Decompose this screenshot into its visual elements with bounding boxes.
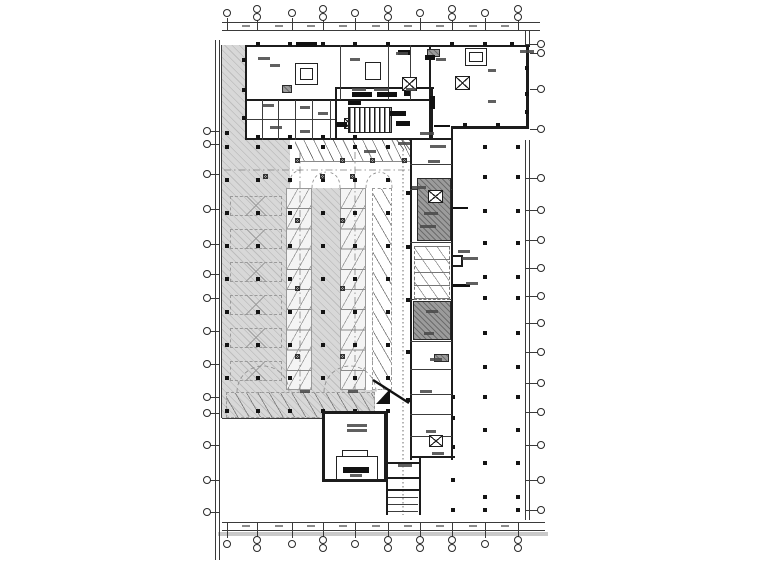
structural-column — [386, 178, 390, 182]
annotation-text-illegible — [398, 142, 410, 145]
annotation-text-illegible — [420, 225, 436, 228]
leader-line — [434, 125, 450, 127]
structural-column — [353, 244, 357, 248]
annotation-text-illegible — [420, 132, 434, 135]
wall-column-tick — [525, 66, 529, 70]
partition-wall — [330, 100, 331, 140]
wall-column-tick — [353, 135, 357, 139]
room-outline — [365, 62, 381, 80]
structural-column — [483, 428, 487, 432]
wall-segment — [245, 99, 431, 101]
annotation-text-illegible — [300, 130, 310, 133]
light-fixture-marker — [340, 354, 345, 359]
partition-wall — [295, 100, 296, 140]
wall-column-tick — [288, 135, 292, 139]
structural-column — [288, 310, 292, 314]
structural-column — [256, 343, 260, 347]
annotation-text-illegible — [300, 390, 310, 393]
annotation-text-illegible — [466, 282, 478, 285]
centerline-path — [366, 172, 380, 188]
structural-column — [288, 178, 292, 182]
wall-column-tick — [525, 110, 529, 114]
core-stall-rows — [414, 246, 450, 300]
electrical-equipment-bar — [396, 121, 410, 126]
annotation-text-illegible — [350, 58, 360, 61]
structural-column — [516, 395, 520, 399]
annotation-text-illegible — [424, 332, 434, 335]
structural-column — [516, 275, 520, 279]
structural-column — [483, 241, 487, 245]
structural-column — [321, 310, 325, 314]
leader-line — [453, 207, 468, 209]
electrical-equipment-bar — [348, 101, 361, 105]
structural-column — [483, 508, 487, 512]
structural-column — [288, 211, 292, 215]
wall-column-tick — [242, 58, 246, 62]
annotation-text-illegible — [348, 390, 358, 393]
structural-column — [483, 365, 487, 369]
wall-segment — [386, 477, 420, 479]
partition-wall — [388, 497, 418, 498]
partition-wall — [410, 242, 452, 243]
switchgear-grille — [348, 107, 392, 133]
structural-column — [321, 145, 325, 149]
wall-segment — [322, 411, 325, 482]
electrical-equipment-bar — [425, 55, 435, 60]
ramp-arrow — [376, 389, 390, 404]
wall-segment — [386, 413, 388, 515]
centerline-path — [373, 380, 409, 403]
room-outline — [342, 450, 368, 457]
structural-column — [225, 343, 229, 347]
structural-column — [321, 376, 325, 380]
structural-column — [483, 175, 487, 179]
structural-column — [483, 275, 487, 279]
wall-segment — [322, 411, 387, 414]
structural-column — [516, 209, 520, 213]
annotation-text-illegible — [426, 310, 438, 313]
elevator-icon — [429, 435, 443, 447]
structural-column — [516, 495, 520, 499]
wall-segment — [335, 87, 337, 140]
partition-wall — [410, 394, 452, 395]
structural-column — [256, 277, 260, 281]
structural-column — [288, 277, 292, 281]
structural-column — [516, 331, 520, 335]
annotation-text-illegible — [406, 88, 416, 91]
annotation-text-illegible — [364, 150, 376, 153]
wall-segment — [245, 138, 453, 140]
centerline-path — [237, 366, 289, 392]
annotation-text-illegible — [458, 250, 470, 253]
annotation-text-illegible — [462, 257, 478, 260]
structural-column — [483, 395, 487, 399]
structural-column — [288, 409, 292, 413]
structural-column — [225, 376, 229, 380]
partition-wall — [410, 369, 452, 370]
structural-column — [256, 145, 260, 149]
structural-column — [516, 461, 520, 465]
wall-column-tick — [321, 42, 325, 46]
room-outline — [300, 68, 313, 80]
structural-column — [483, 209, 487, 213]
structural-column — [516, 241, 520, 245]
wall-column-tick — [463, 123, 467, 127]
structural-column — [516, 175, 520, 179]
structural-column — [386, 310, 390, 314]
electrical-equipment-bar — [296, 42, 317, 47]
structural-column — [386, 244, 390, 248]
electrical-equipment-bar — [352, 92, 372, 97]
structural-column — [516, 145, 520, 149]
shaft-hatch — [282, 85, 292, 93]
centerline-path — [324, 366, 376, 392]
structural-column — [483, 145, 487, 149]
wall-column-tick — [242, 88, 246, 92]
partition-wall — [340, 45, 341, 100]
wall-column-tick — [483, 42, 487, 46]
partition-wall — [312, 100, 313, 140]
light-fixture-marker — [263, 174, 268, 179]
structural-column — [483, 495, 487, 499]
structural-column — [225, 131, 229, 135]
partition-wall — [388, 504, 418, 505]
structural-column — [256, 244, 260, 248]
wall-segment — [526, 45, 529, 129]
annotation-text-illegible — [374, 88, 388, 91]
annotation-text-illegible — [436, 58, 446, 61]
structural-column — [256, 310, 260, 314]
structural-column — [353, 145, 357, 149]
structural-column — [483, 331, 487, 335]
structural-column — [386, 277, 390, 281]
annotation-text-illegible — [396, 52, 408, 55]
structural-column — [353, 211, 357, 215]
structural-column — [516, 296, 520, 300]
annotation-text-illegible — [424, 212, 438, 215]
partition-wall — [388, 511, 418, 512]
elevator-icon — [455, 76, 470, 90]
annotation-text-illegible — [432, 452, 444, 455]
structural-column — [451, 478, 455, 482]
wall-column-tick — [321, 135, 325, 139]
structural-column — [225, 145, 229, 149]
annotation-text-illegible — [488, 69, 496, 72]
wall-segment — [451, 394, 453, 460]
partition-wall — [245, 119, 335, 120]
room-outline — [469, 52, 483, 62]
wall-column-tick — [525, 92, 529, 96]
structural-column — [288, 376, 292, 380]
annotation-text-illegible — [350, 474, 362, 477]
annotation-text-illegible — [270, 64, 280, 67]
light-fixture-marker — [350, 174, 355, 179]
annotation-text-illegible — [488, 100, 496, 103]
light-fixture-marker — [370, 158, 375, 163]
annotation-text-illegible — [318, 112, 328, 115]
annotation-text-illegible — [300, 106, 310, 109]
structural-column — [516, 428, 520, 432]
annotation-text-illegible — [398, 464, 412, 467]
structural-column — [483, 296, 487, 300]
electrical-equipment-bar — [390, 111, 406, 116]
annotation-text-illegible — [270, 126, 282, 129]
annotation-text-illegible — [347, 429, 367, 432]
structural-column — [386, 343, 390, 347]
electrical-equipment-bar — [430, 96, 435, 109]
wall-segment — [451, 126, 453, 400]
wall-column-tick — [353, 42, 357, 46]
wall-column-tick — [288, 42, 292, 46]
light-fixture-marker — [340, 158, 345, 163]
annotation-text-illegible — [412, 186, 426, 189]
structural-column — [225, 277, 229, 281]
annotation-text-illegible — [352, 88, 366, 91]
wall-column-tick — [386, 42, 390, 46]
wall-column-tick — [256, 42, 260, 46]
annotation-text-illegible — [420, 390, 432, 393]
wall-column-tick — [496, 123, 500, 127]
light-fixture-marker — [295, 218, 300, 223]
light-fixture-marker — [295, 286, 300, 291]
structural-column — [321, 244, 325, 248]
structural-column — [225, 211, 229, 215]
structural-column — [321, 277, 325, 281]
structural-column — [225, 178, 229, 182]
structural-column — [353, 277, 357, 281]
structural-column — [256, 178, 260, 182]
annotation-text-illegible — [426, 430, 436, 433]
structural-column — [256, 376, 260, 380]
light-fixture-marker — [295, 158, 300, 163]
annotation-text-illegible — [430, 358, 442, 361]
structural-column — [225, 244, 229, 248]
structural-column — [321, 211, 325, 215]
structural-column — [451, 508, 455, 512]
structural-column — [353, 376, 357, 380]
electrical-equipment-bar — [404, 91, 410, 96]
structural-column — [256, 409, 260, 413]
light-fixture-marker — [295, 354, 300, 359]
structural-column — [353, 310, 357, 314]
annotation-text-illegible — [520, 50, 534, 53]
wall-column-tick — [242, 116, 246, 120]
structural-column — [386, 211, 390, 215]
electrical-equipment-bar — [377, 92, 397, 97]
light-fixture-marker — [340, 218, 345, 223]
partition-wall — [410, 414, 452, 415]
structural-column — [288, 145, 292, 149]
floor-plan-drawing — [0, 0, 760, 570]
light-fixture-marker — [340, 286, 345, 291]
structural-column — [225, 409, 229, 413]
partition-wall — [410, 164, 452, 165]
structural-column — [288, 244, 292, 248]
partition-wall — [410, 45, 411, 100]
centerline-path — [328, 172, 340, 188]
electrical-equipment-bar — [343, 467, 369, 473]
wall-column-tick — [450, 42, 454, 46]
structural-column — [516, 508, 520, 512]
annotation-text-illegible — [258, 57, 270, 60]
elevator-icon — [428, 190, 443, 203]
wall-column-tick — [256, 135, 260, 139]
structural-column — [353, 343, 357, 347]
annotation-text-illegible — [430, 145, 446, 148]
structural-column — [288, 343, 292, 347]
wall-segment — [386, 489, 420, 491]
structural-column — [256, 211, 260, 215]
partition-wall — [410, 341, 452, 342]
light-fixture-marker — [320, 174, 325, 179]
structural-column — [386, 145, 390, 149]
wall-segment — [410, 456, 455, 458]
structural-column — [516, 365, 520, 369]
annotation-text-illegible — [428, 160, 440, 163]
annotation-text-illegible — [347, 424, 367, 427]
structural-column — [483, 461, 487, 465]
wall-segment — [419, 458, 421, 515]
partition-wall — [278, 100, 279, 140]
light-fixture-marker — [402, 158, 407, 163]
structural-column — [386, 376, 390, 380]
structural-column — [225, 310, 229, 314]
annotation-text-illegible — [262, 104, 274, 107]
electrical-equipment-bar — [336, 122, 347, 127]
structural-column — [321, 343, 325, 347]
wall-column-tick — [510, 42, 514, 46]
